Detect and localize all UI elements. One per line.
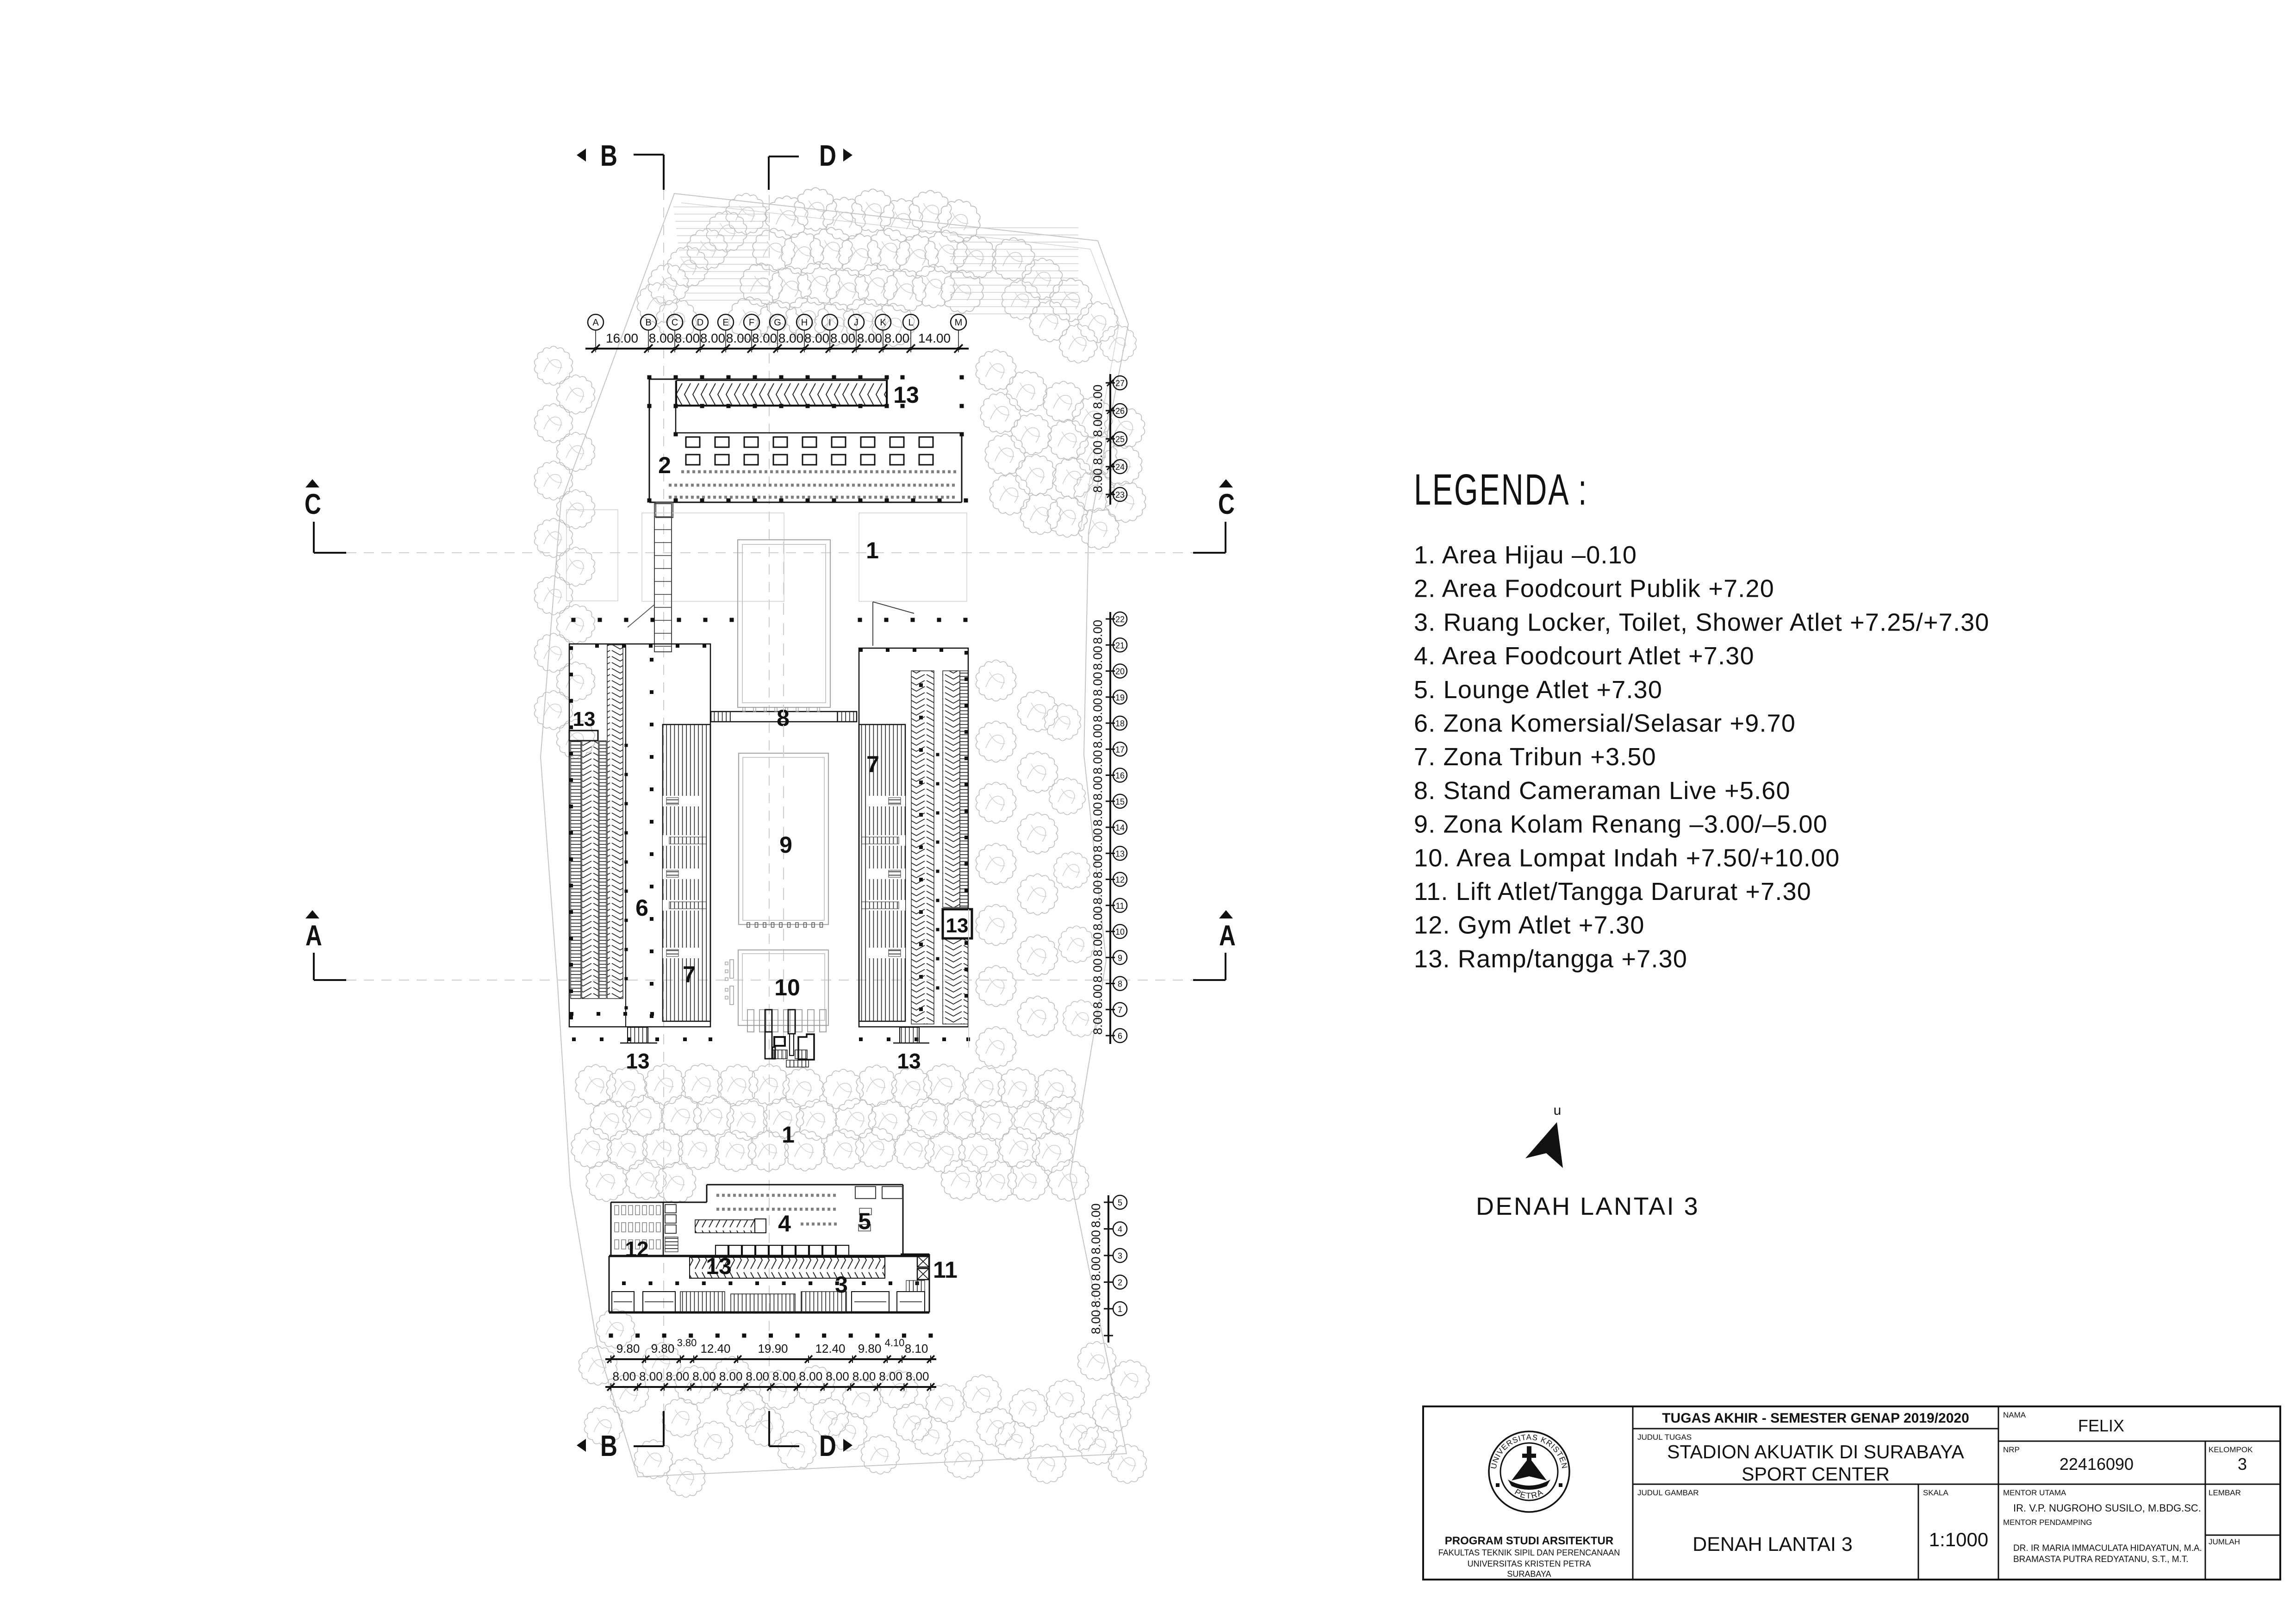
svg-text:9.80: 9.80	[616, 1342, 640, 1355]
svg-text:13: 13	[706, 1253, 732, 1279]
svg-text:9: 9	[1118, 953, 1122, 962]
svg-text:DR. IR MARIA IMMACULATA HIDAYA: DR. IR MARIA IMMACULATA HIDAYATUN, M.A.	[2013, 1543, 2202, 1553]
svg-text:G: G	[774, 318, 781, 328]
svg-text:1: 1	[866, 537, 879, 563]
svg-text:8.00: 8.00	[1091, 880, 1105, 905]
svg-text:M: M	[955, 318, 963, 328]
svg-text:12.40: 12.40	[815, 1342, 845, 1355]
svg-text:12: 12	[1115, 875, 1125, 885]
svg-text:21: 21	[1115, 641, 1125, 650]
svg-text:8.00: 8.00	[692, 1369, 716, 1383]
svg-text:8.00: 8.00	[1089, 1203, 1103, 1228]
svg-text:B: B	[645, 318, 651, 328]
svg-text:8.00: 8.00	[726, 331, 752, 345]
svg-text:8.00: 8.00	[906, 1369, 929, 1383]
svg-text:8.00: 8.00	[1091, 646, 1105, 670]
svg-text:3. Ruang Locker, Toilet, Showe: 3. Ruang Locker, Toilet, Shower Atlet +7…	[1414, 608, 1990, 636]
svg-text:4: 4	[1118, 1225, 1122, 1234]
svg-text:10: 10	[774, 974, 800, 1000]
svg-text:STADION AKUATIK DI SURABAYA: STADION AKUATIK DI SURABAYA	[1667, 1441, 1964, 1462]
svg-text:7. Zona Tribun +3.50: 7. Zona Tribun +3.50	[1414, 743, 1656, 771]
svg-text:13: 13	[626, 1049, 649, 1073]
svg-text:3: 3	[835, 1272, 848, 1298]
svg-text:14: 14	[1115, 823, 1125, 832]
svg-text:8.00: 8.00	[752, 331, 778, 345]
svg-text:4. Area Foodcourt Atlet +7.30: 4. Area Foodcourt Atlet +7.30	[1414, 642, 1755, 670]
svg-text:K: K	[880, 318, 886, 328]
svg-text:8.00: 8.00	[612, 1369, 636, 1383]
svg-text:B: B	[600, 140, 617, 173]
svg-text:3.80: 3.80	[677, 1337, 697, 1349]
svg-text:5. Lounge Atlet +7.30: 5. Lounge Atlet +7.30	[1414, 676, 1662, 704]
svg-text:3: 3	[2238, 1455, 2247, 1474]
svg-text:26: 26	[1115, 406, 1125, 416]
svg-text:C: C	[305, 488, 321, 520]
svg-text:11: 11	[933, 1257, 958, 1283]
svg-text:8.00: 8.00	[857, 331, 883, 345]
svg-text:9.80: 9.80	[858, 1342, 882, 1355]
svg-text:DENAH LANTAI 3: DENAH LANTAI 3	[1692, 1533, 1853, 1555]
svg-text:8.00: 8.00	[1091, 620, 1105, 644]
svg-text:SPORT CENTER: SPORT CENTER	[1742, 1463, 1890, 1485]
svg-text:L: L	[908, 318, 913, 328]
svg-text:6: 6	[635, 895, 648, 921]
svg-text:F: F	[749, 318, 754, 328]
svg-text:8.00: 8.00	[1091, 468, 1105, 493]
svg-text:11: 11	[1116, 901, 1125, 911]
svg-text:B: B	[600, 1430, 617, 1463]
svg-text:8.10: 8.10	[905, 1342, 928, 1355]
svg-text:12.40: 12.40	[700, 1342, 730, 1355]
svg-text:24: 24	[1115, 462, 1125, 472]
svg-text:25: 25	[1115, 435, 1125, 444]
svg-text:19.90: 19.90	[758, 1342, 788, 1355]
svg-text:J: J	[854, 318, 859, 328]
svg-text:E: E	[722, 318, 728, 328]
svg-text:8.00: 8.00	[772, 1369, 796, 1383]
svg-text:12. Gym Atlet +7.30: 12. Gym Atlet +7.30	[1414, 912, 1645, 939]
svg-text:8.00: 8.00	[1091, 984, 1105, 1009]
svg-text:8.00: 8.00	[1091, 750, 1105, 775]
svg-text:8.00: 8.00	[1091, 724, 1105, 749]
svg-text:8.00: 8.00	[1091, 828, 1105, 853]
svg-text:PROGRAM STUDI ARSITEKTUR: PROGRAM STUDI ARSITEKTUR	[1445, 1535, 1613, 1547]
svg-text:FELIX: FELIX	[2078, 1416, 2124, 1435]
svg-text:22: 22	[1115, 615, 1125, 624]
svg-text:8.00: 8.00	[700, 331, 726, 345]
svg-text:8.00: 8.00	[1091, 412, 1105, 437]
svg-text:D: D	[819, 140, 836, 173]
svg-text:10. Area Lompat Indah +7.50/+1: 10. Area Lompat Indah +7.50/+10.00	[1414, 844, 1840, 872]
svg-text:1: 1	[782, 1122, 795, 1148]
svg-text:23: 23	[1115, 490, 1125, 500]
svg-text:8.00: 8.00	[1091, 906, 1105, 931]
svg-text:8.00: 8.00	[1091, 802, 1105, 827]
svg-text:13: 13	[1115, 849, 1125, 858]
svg-text:8.00: 8.00	[1091, 854, 1105, 879]
svg-text:8.00: 8.00	[719, 1369, 743, 1383]
svg-text:SURABAYA: SURABAYA	[1507, 1569, 1551, 1579]
svg-text:3: 3	[1118, 1251, 1122, 1261]
svg-text:8.00: 8.00	[1089, 1310, 1103, 1334]
svg-text:8.00: 8.00	[1091, 958, 1105, 983]
svg-text:D: D	[697, 318, 703, 328]
svg-text:19: 19	[1115, 693, 1125, 702]
svg-text:8.00: 8.00	[778, 331, 804, 345]
svg-text:2. Area Foodcourt Publik +7.20: 2. Area Foodcourt Publik +7.20	[1414, 575, 1774, 603]
svg-text:FAKULTAS TEKNIK SIPIL DAN PERE: FAKULTAS TEKNIK SIPIL DAN PERENCANAAN	[1438, 1548, 1620, 1557]
svg-text:4.10: 4.10	[885, 1337, 905, 1349]
svg-text:13: 13	[573, 708, 596, 731]
svg-text:16: 16	[1115, 771, 1125, 781]
svg-text:18: 18	[1115, 719, 1125, 728]
svg-text:u: u	[1554, 1103, 1562, 1118]
svg-text:1. Area Hijau –0.10: 1. Area Hijau –0.10	[1414, 541, 1637, 569]
svg-text:C: C	[1218, 488, 1235, 520]
svg-text:13. Ramp/tangga +7.30: 13. Ramp/tangga +7.30	[1414, 945, 1687, 973]
svg-text:D: D	[819, 1430, 836, 1463]
svg-text:A: A	[1219, 919, 1236, 952]
svg-text:C: C	[672, 318, 678, 328]
svg-text:I: I	[828, 318, 831, 328]
svg-text:8. Stand Cameraman Live +5.60: 8. Stand Cameraman Live +5.60	[1414, 777, 1791, 805]
svg-text:DENAH LANTAI 3: DENAH LANTAI 3	[1476, 1193, 1699, 1220]
svg-text:8: 8	[1118, 980, 1122, 989]
svg-text:TUGAS AKHIR - SEMESTER GENAP 2: TUGAS AKHIR - SEMESTER GENAP 2019/2020	[1662, 1411, 1969, 1426]
svg-text:8.00: 8.00	[1091, 932, 1105, 957]
svg-text:8.00: 8.00	[1091, 776, 1105, 800]
svg-text:8.00: 8.00	[830, 331, 856, 345]
svg-text:5: 5	[1118, 1198, 1122, 1207]
svg-text:8.00: 8.00	[1089, 1283, 1103, 1308]
svg-text:2: 2	[658, 452, 671, 478]
svg-text:JUMLAH: JUMLAH	[2209, 1537, 2240, 1546]
svg-text:8.00: 8.00	[879, 1369, 902, 1383]
svg-text:11. Lift Atlet/Tangga Darurat: 11. Lift Atlet/Tangga Darurat +7.30	[1414, 878, 1811, 906]
svg-text:12: 12	[625, 1237, 648, 1261]
svg-text:8.00: 8.00	[1089, 1230, 1103, 1255]
svg-text:8.00: 8.00	[799, 1369, 823, 1383]
svg-text:MENTOR UTAMA: MENTOR UTAMA	[2003, 1488, 2066, 1497]
svg-text:14.00: 14.00	[918, 331, 951, 345]
svg-text:6: 6	[1118, 1031, 1122, 1041]
svg-text:13: 13	[897, 1049, 921, 1073]
svg-text:8.00: 8.00	[1091, 441, 1105, 465]
svg-text:8.00: 8.00	[675, 331, 700, 345]
svg-text:8.00: 8.00	[1091, 1011, 1105, 1035]
svg-text:IR. V.P. NUGROHO SUSILO, M.BDG: IR. V.P. NUGROHO SUSILO, M.BDG.SC.	[2013, 1502, 2201, 1514]
svg-text:17: 17	[1115, 745, 1125, 754]
svg-text:MENTOR PENDAMPING: MENTOR PENDAMPING	[2003, 1518, 2092, 1527]
svg-text:4: 4	[778, 1211, 791, 1237]
svg-text:UNIVERSITAS KRISTEN PETRA: UNIVERSITAS KRISTEN PETRA	[1468, 1559, 1591, 1568]
svg-text:15: 15	[1115, 797, 1125, 806]
svg-text:BRAMASTA PUTRA REDYATANU, S.T.: BRAMASTA PUTRA REDYATANU, S.T., M.T.	[2013, 1555, 2189, 1564]
svg-text:1:1000: 1:1000	[1929, 1529, 1988, 1550]
svg-text:8.00: 8.00	[746, 1369, 769, 1383]
svg-text:LEGENDA :: LEGENDA :	[1414, 465, 1588, 514]
svg-text:8.00: 8.00	[1091, 385, 1105, 409]
svg-text:8.00: 8.00	[649, 331, 674, 345]
svg-text:8.00: 8.00	[1091, 698, 1105, 723]
svg-text:16.00: 16.00	[606, 331, 638, 345]
svg-text:1: 1	[1118, 1305, 1122, 1314]
svg-text:7: 7	[866, 751, 879, 777]
svg-text:8.00: 8.00	[1089, 1256, 1103, 1281]
svg-text:JUDUL GAMBAR: JUDUL GAMBAR	[1637, 1488, 1699, 1497]
svg-text:9: 9	[779, 832, 792, 858]
svg-text:27: 27	[1115, 379, 1125, 388]
svg-text:6. Zona Komersial/Selasar +9.7: 6. Zona Komersial/Selasar +9.70	[1414, 710, 1796, 737]
svg-text:KELOMPOK: KELOMPOK	[2209, 1445, 2253, 1454]
svg-text:JUDUL TUGAS: JUDUL TUGAS	[1637, 1433, 1692, 1442]
svg-text:7: 7	[1118, 1006, 1122, 1015]
svg-text:A: A	[305, 919, 322, 952]
svg-text:10: 10	[1115, 927, 1125, 937]
svg-text:2: 2	[1118, 1278, 1122, 1287]
svg-text:8.00: 8.00	[884, 331, 910, 345]
svg-text:8.00: 8.00	[666, 1369, 690, 1383]
svg-text:13: 13	[946, 914, 969, 937]
svg-text:20: 20	[1115, 667, 1125, 676]
svg-text:5: 5	[858, 1208, 871, 1234]
svg-text:8.00: 8.00	[1091, 672, 1105, 696]
svg-text:9.80: 9.80	[651, 1342, 675, 1355]
svg-text:8.00: 8.00	[826, 1369, 849, 1383]
svg-text:7: 7	[683, 962, 696, 987]
svg-text:NRP: NRP	[2003, 1445, 2020, 1454]
svg-text:8.00: 8.00	[639, 1369, 663, 1383]
svg-text:SKALA: SKALA	[1923, 1488, 1948, 1497]
svg-text:NAMA: NAMA	[2003, 1411, 2026, 1419]
svg-text:8.00: 8.00	[804, 331, 830, 345]
svg-text:LEMBAR: LEMBAR	[2209, 1488, 2241, 1497]
svg-text:8.00: 8.00	[852, 1369, 876, 1383]
svg-text:22416090: 22416090	[2060, 1455, 2134, 1474]
svg-text:H: H	[801, 318, 808, 328]
svg-text:9. Zona Kolam Renang –3.00/–5.: 9. Zona Kolam Renang –3.00/–5.00	[1414, 811, 1828, 838]
svg-text:A: A	[592, 318, 599, 328]
svg-text:13: 13	[893, 382, 919, 408]
